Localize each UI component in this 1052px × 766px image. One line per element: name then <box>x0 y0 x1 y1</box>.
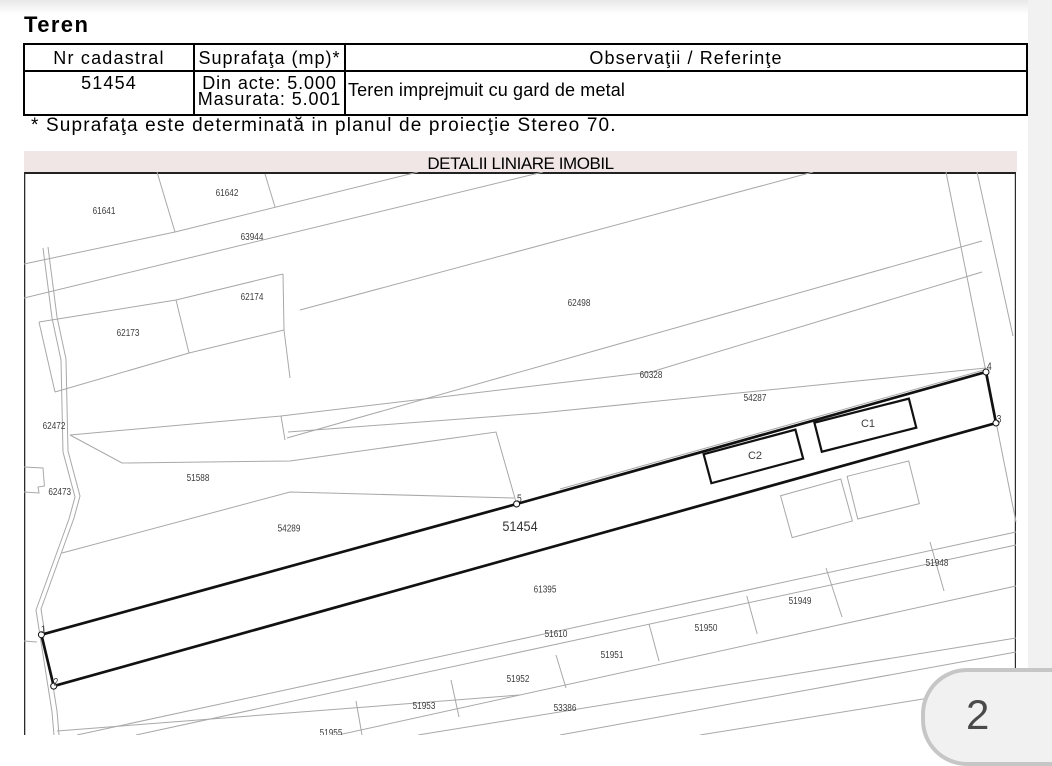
svg-text:51950: 51950 <box>695 621 718 633</box>
svg-text:51948: 51948 <box>926 556 949 568</box>
svg-text:62473: 62473 <box>48 485 71 497</box>
svg-text:54287: 54287 <box>744 391 767 403</box>
svg-text:61395: 61395 <box>534 582 557 594</box>
svg-text:51454: 51454 <box>502 519 537 534</box>
svg-text:C1: C1 <box>861 418 875 430</box>
svg-text:1: 1 <box>41 624 46 636</box>
svg-text:C2: C2 <box>748 450 762 462</box>
svg-text:62498: 62498 <box>568 296 591 308</box>
svg-text:4: 4 <box>987 361 992 373</box>
svg-text:62173: 62173 <box>117 326 140 338</box>
svg-text:3: 3 <box>997 414 1002 426</box>
svg-text:62174: 62174 <box>241 290 264 302</box>
svg-text:51952: 51952 <box>507 672 530 684</box>
svg-text:61641: 61641 <box>93 204 116 216</box>
svg-text:51949: 51949 <box>789 594 812 606</box>
svg-text:51953: 51953 <box>413 699 436 711</box>
svg-text:61642: 61642 <box>216 186 239 198</box>
svg-text:60328: 60328 <box>640 368 663 380</box>
svg-text:51610: 51610 <box>545 627 568 639</box>
svg-text:62472: 62472 <box>43 419 66 431</box>
svg-text:51951: 51951 <box>601 648 624 660</box>
svg-text:51588: 51588 <box>187 471 210 483</box>
svg-text:54289: 54289 <box>278 521 301 533</box>
svg-text:5: 5 <box>517 493 522 505</box>
svg-text:2: 2 <box>54 677 59 689</box>
svg-text:51955: 51955 <box>320 726 343 735</box>
svg-text:63944: 63944 <box>241 230 264 242</box>
svg-text:53386: 53386 <box>554 701 577 713</box>
